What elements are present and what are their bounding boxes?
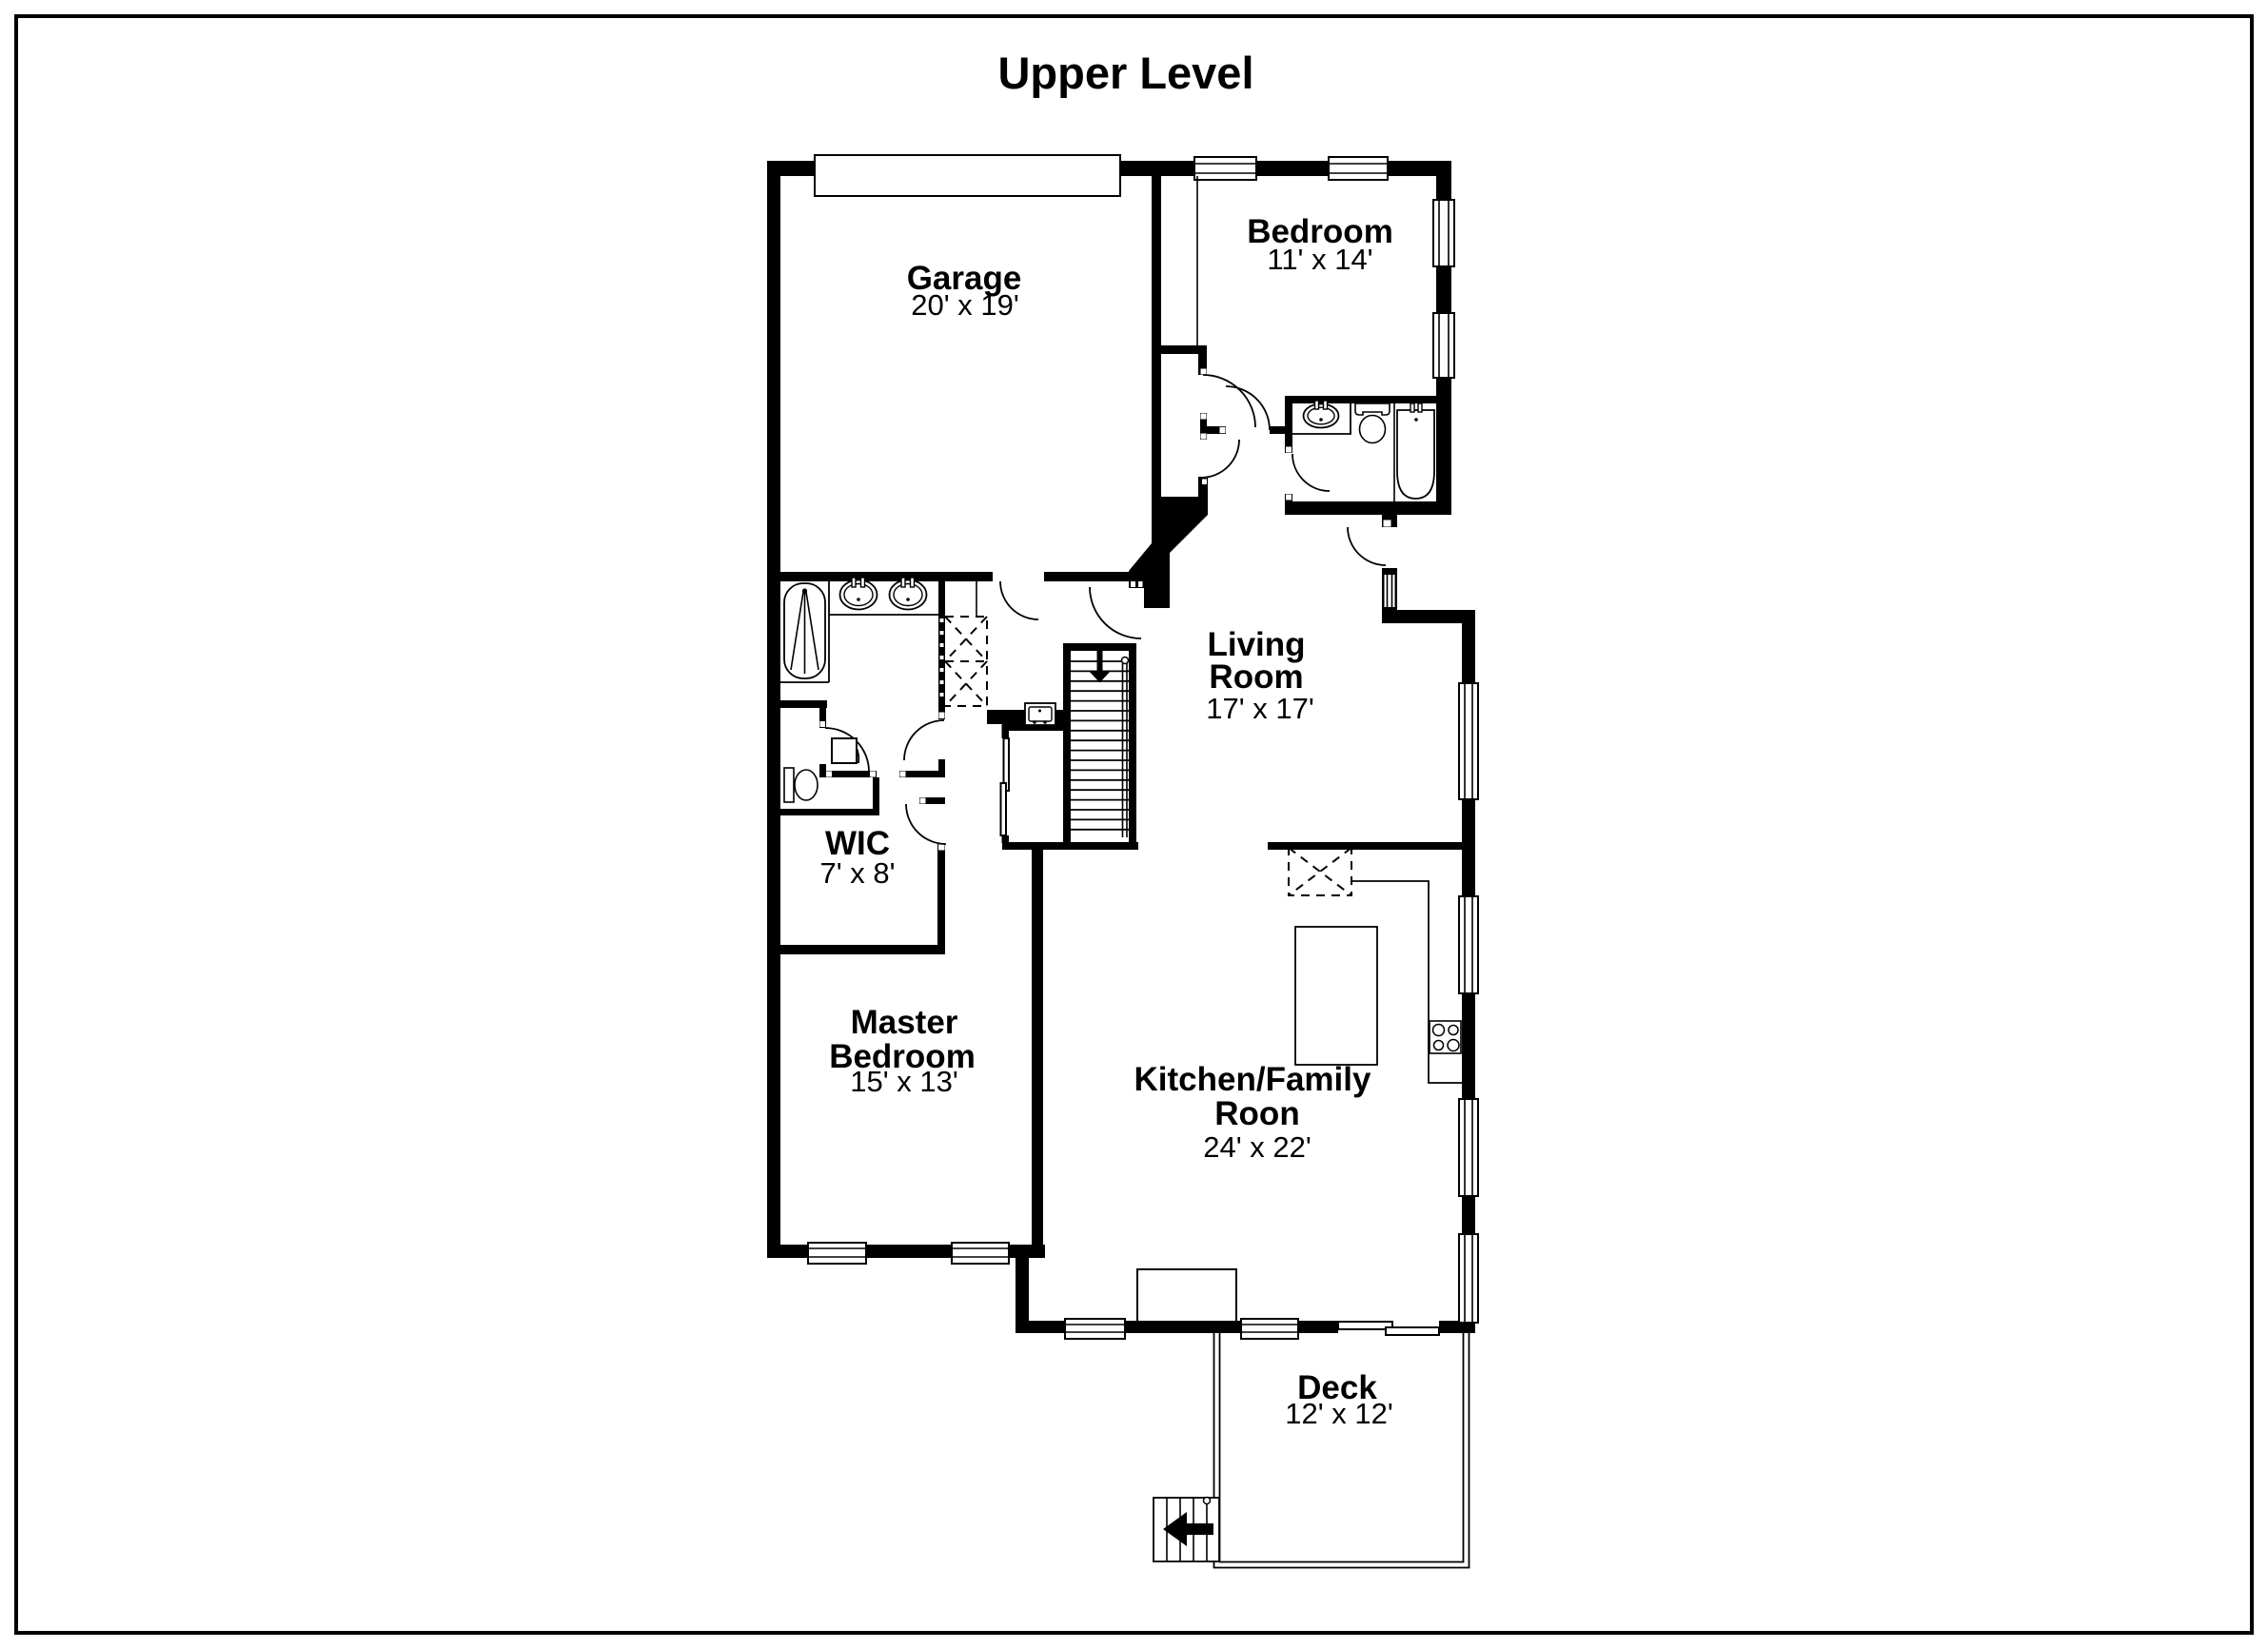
svg-text:Master: Master: [851, 1004, 958, 1041]
svg-text:17' x 17': 17' x 17': [1206, 692, 1314, 725]
svg-text:Upper Level: Upper Level: [997, 48, 1253, 98]
svg-text:20' x 19': 20' x 19': [911, 288, 1019, 322]
svg-text:15' x 13': 15' x 13': [850, 1065, 958, 1098]
svg-text:Roon: Roon: [1214, 1095, 1299, 1132]
svg-text:11' x 14': 11' x 14': [1267, 243, 1372, 276]
svg-text:24' x 22': 24' x 22': [1203, 1130, 1311, 1164]
svg-text:Room: Room: [1209, 658, 1303, 696]
svg-text:7' x 8': 7' x 8': [819, 856, 895, 890]
svg-text:12' x 12': 12' x 12': [1285, 1397, 1393, 1430]
svg-text:Kitchen/Family: Kitchen/Family: [1134, 1061, 1371, 1098]
